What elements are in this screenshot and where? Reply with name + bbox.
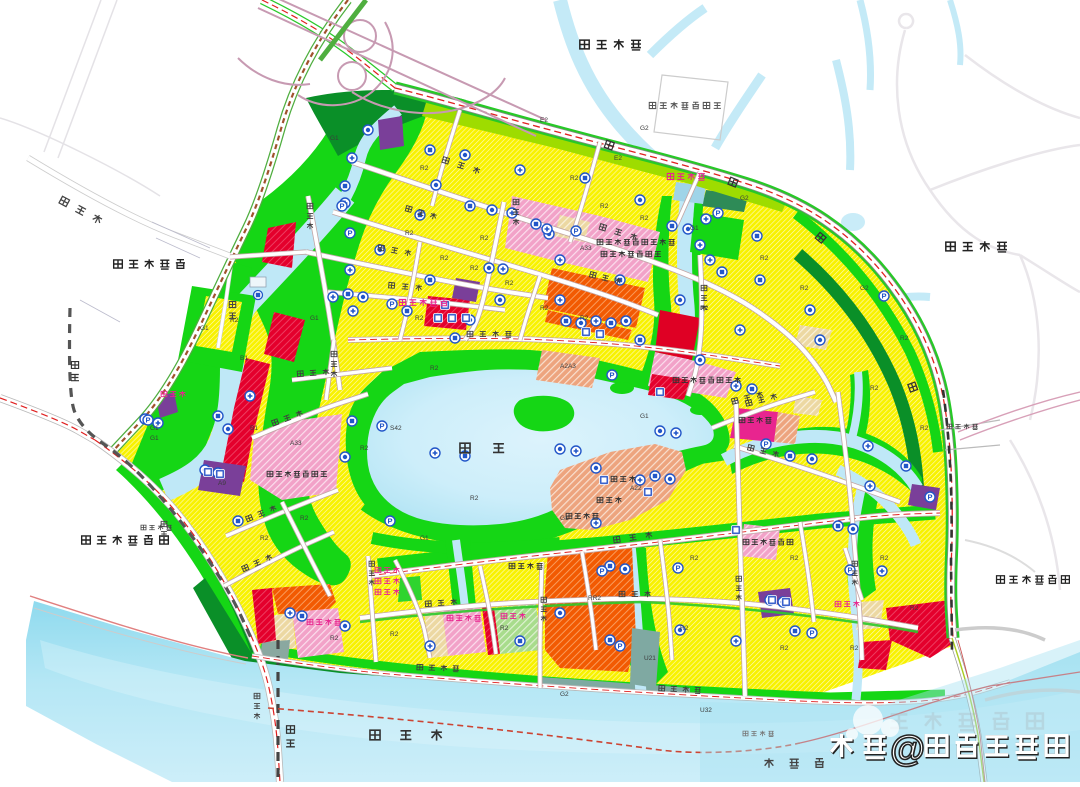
svg-text:R2: R2: [800, 285, 809, 292]
svg-text:P: P: [675, 564, 680, 573]
svg-text:R2: R2: [430, 365, 439, 372]
svg-text:G1: G1: [330, 135, 339, 142]
svg-text:R2: R2: [910, 605, 919, 612]
svg-text:P: P: [847, 566, 852, 575]
svg-text:E2: E2: [540, 117, 548, 124]
svg-text:R2: R2: [580, 315, 589, 322]
svg-text:R2: R2: [360, 445, 369, 452]
svg-text:U32: U32: [700, 707, 712, 714]
svg-text:R2: R2: [300, 515, 309, 522]
svg-text:G1: G1: [560, 515, 569, 522]
svg-text:R2: R2: [415, 315, 424, 322]
svg-text:R2: R2: [230, 317, 239, 324]
svg-text:R2: R2: [480, 235, 489, 242]
svg-text:P: P: [347, 229, 352, 238]
svg-text:P: P: [617, 642, 622, 651]
svg-text:P: P: [339, 202, 344, 211]
svg-text:P: P: [145, 416, 150, 425]
svg-text:B1: B1: [240, 355, 248, 362]
svg-text:A22: A22: [630, 485, 642, 492]
svg-text:R2: R2: [700, 305, 709, 312]
svg-text:G2: G2: [640, 125, 649, 132]
svg-text:R2: R2: [500, 625, 509, 632]
svg-text:P: P: [763, 440, 768, 449]
svg-text:A2A3: A2A3: [560, 363, 576, 370]
svg-text:R2: R2: [470, 265, 479, 272]
svg-text:S42: S42: [390, 425, 402, 432]
svg-text:A9: A9: [218, 480, 226, 487]
svg-text:G1: G1: [200, 325, 209, 332]
svg-text:R2: R2: [330, 635, 339, 642]
svg-text:P: P: [881, 292, 886, 301]
svg-text:A33: A33: [580, 245, 592, 252]
svg-text:P: P: [389, 300, 394, 309]
svg-text:G2: G2: [740, 195, 749, 202]
svg-text:P: P: [715, 209, 720, 218]
svg-text:R2: R2: [690, 555, 699, 562]
svg-text:G1: G1: [640, 413, 649, 420]
svg-text:R2: R2: [600, 203, 609, 210]
svg-text:R2: R2: [780, 645, 789, 652]
svg-text:U21: U21: [644, 655, 656, 662]
svg-text:B1: B1: [250, 425, 258, 432]
svg-text:R2: R2: [440, 255, 449, 262]
svg-text:P: P: [927, 493, 932, 502]
svg-text:G1: G1: [150, 435, 159, 442]
svg-text:G2: G2: [560, 691, 569, 698]
svg-text:R2: R2: [390, 631, 399, 638]
svg-text:R2: R2: [680, 625, 689, 632]
svg-text:G2: G2: [860, 285, 869, 292]
svg-text:G1: G1: [690, 225, 699, 232]
svg-text:A33: A33: [290, 440, 302, 447]
svg-text:R2: R2: [900, 335, 909, 342]
svg-text:R2: R2: [870, 385, 879, 392]
svg-text:@: @: [890, 728, 925, 769]
svg-text:P: P: [609, 371, 614, 380]
svg-text:RR2: RR2: [588, 595, 601, 602]
svg-text:R2: R2: [405, 230, 414, 237]
svg-text:R2: R2: [880, 555, 889, 562]
svg-text:R2: R2: [570, 175, 579, 182]
svg-text:P: P: [599, 567, 604, 576]
svg-text:R2: R2: [850, 645, 859, 652]
svg-text:R2: R2: [470, 495, 479, 502]
svg-text:R2: R2: [920, 425, 929, 432]
svg-text:E2: E2: [614, 155, 622, 162]
svg-text:G1: G1: [310, 315, 319, 322]
svg-text:P: P: [379, 422, 384, 431]
svg-text:P: P: [387, 517, 392, 526]
svg-text:G1: G1: [420, 535, 429, 542]
svg-text:R2: R2: [540, 305, 549, 312]
svg-text:R2: R2: [420, 165, 429, 172]
svg-text:P: P: [809, 629, 814, 638]
svg-text:R2: R2: [790, 555, 799, 562]
svg-text:R2: R2: [505, 280, 514, 287]
svg-text:R2: R2: [260, 535, 269, 542]
svg-text:R2: R2: [760, 255, 769, 262]
svg-text:R2: R2: [640, 215, 649, 222]
svg-text:G1: G1: [150, 425, 159, 432]
svg-text:P: P: [573, 227, 578, 236]
